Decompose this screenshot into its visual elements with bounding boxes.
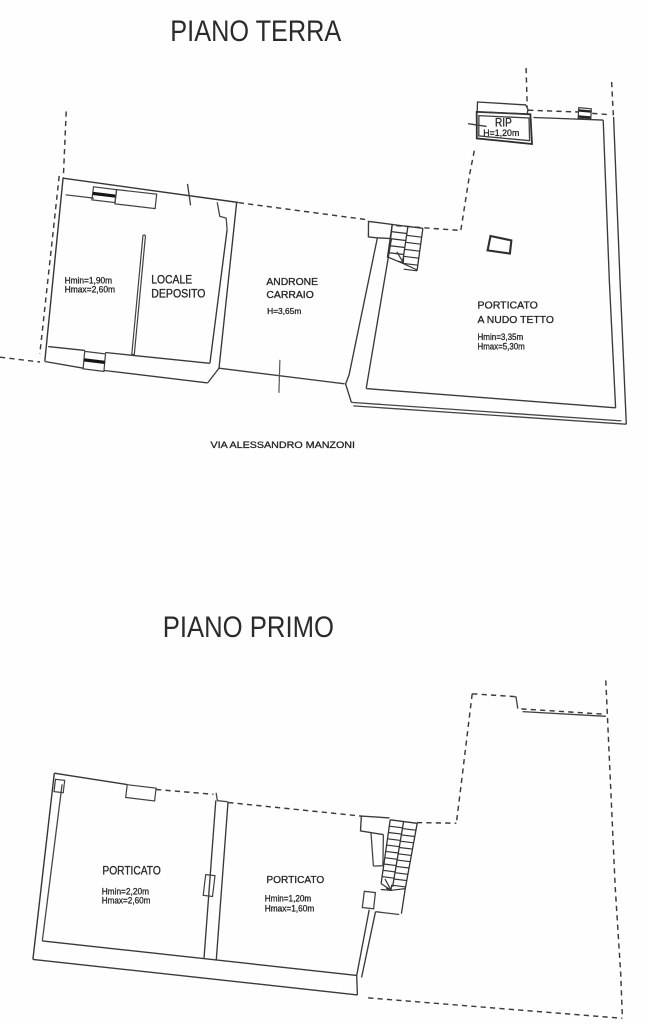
svg-text:PIANO TERRA: PIANO TERRA — [170, 15, 341, 48]
svg-text:DEPOSITO: DEPOSITO — [151, 288, 205, 300]
svg-text:Hmax=1,60m: Hmax=1,60m — [265, 903, 315, 913]
svg-text:PORTICATO: PORTICATO — [102, 866, 160, 878]
svg-text:H=3,65m: H=3,65m — [267, 307, 301, 316]
svg-text:Hmax=2,60m: Hmax=2,60m — [102, 896, 151, 906]
svg-text:ANDRONE: ANDRONE — [266, 277, 318, 288]
svg-text:VIA ALESSANDRO MANZONI: VIA ALESSANDRO MANZONI — [211, 440, 356, 450]
svg-text:H=1,20m: H=1,20m — [483, 128, 519, 138]
svg-text:PIANO PRIMO: PIANO PRIMO — [163, 611, 334, 644]
svg-text:Hmax=5,30m: Hmax=5,30m — [478, 342, 525, 352]
svg-text:Hmin=1,20m: Hmin=1,20m — [265, 893, 311, 903]
svg-text:A NUDO TETTO: A NUDO TETTO — [478, 314, 555, 326]
svg-text:PORTICATO: PORTICATO — [266, 874, 324, 886]
svg-text:PORTICATO: PORTICATO — [478, 299, 538, 311]
svg-text:LOCALE: LOCALE — [151, 275, 192, 287]
svg-text:CARRAIO: CARRAIO — [266, 290, 314, 301]
svg-text:Hmax=2,60m: Hmax=2,60m — [65, 285, 116, 295]
